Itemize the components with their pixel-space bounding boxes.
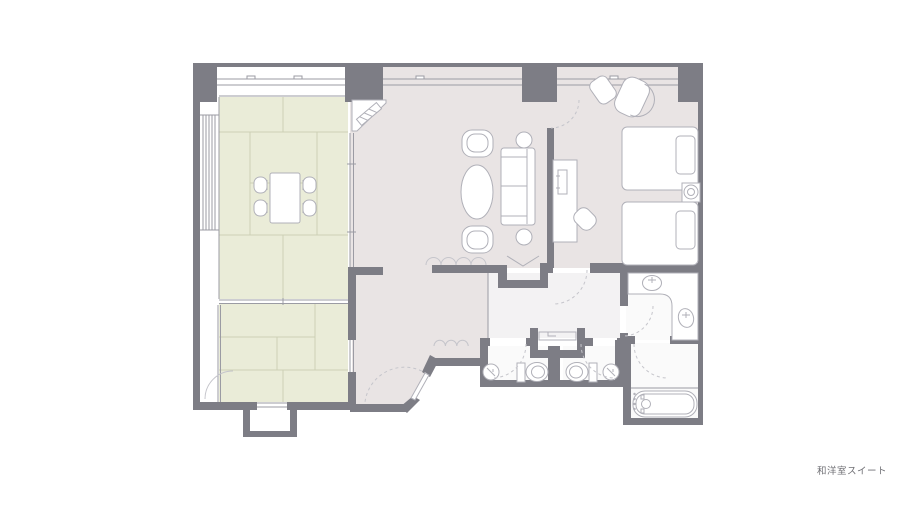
floor-chair [254,200,267,216]
toilet-room-b [566,363,619,383]
floor-chair [254,177,267,193]
column [345,63,383,102]
window-mullion [610,76,618,79]
side-table [516,229,532,245]
balcony-wall [243,431,297,437]
floor-chair [303,177,316,193]
pillow [676,136,695,174]
toilet-tank [589,363,597,382]
pillow [676,211,695,249]
toilet-south-wall [480,380,623,387]
floor-plan-page: 和洋室スイート [0,0,900,506]
fusuma-tatami-divider [219,298,348,305]
side-table [516,132,532,148]
floor-chair [303,200,316,216]
sofa [501,148,535,225]
wall-right [698,63,703,425]
wall-top [193,63,703,67]
low-dining-table [270,173,300,223]
window-mullion [416,76,424,79]
wall-left [193,63,200,410]
plan-caption: 和洋室スイート [812,463,892,477]
floor-plan-image [0,0,900,506]
desk-mirror [558,170,567,194]
window-mullion [247,76,255,79]
toilet-tank [517,363,525,382]
balcony-floor [250,408,290,432]
column [522,63,557,102]
coffee-table [461,165,493,219]
bath-faucet [642,400,651,409]
bathroom-south-wall [623,418,703,425]
window-mullion [294,76,302,79]
bathroom [631,388,698,417]
